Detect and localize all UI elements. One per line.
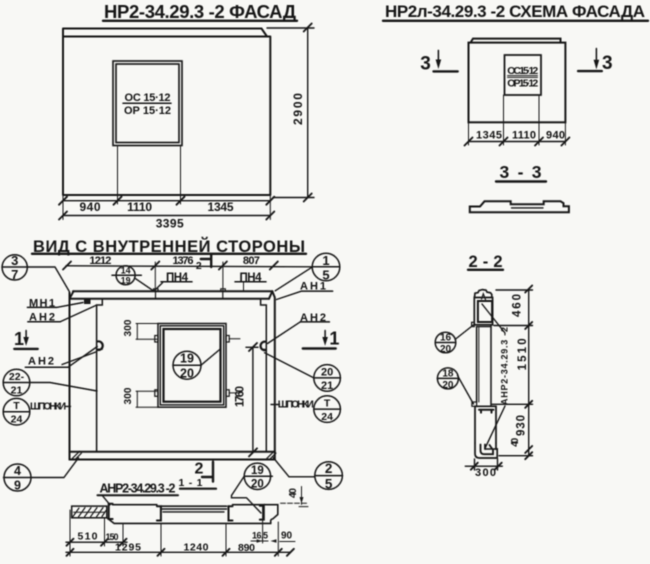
- svg-text:19: 19: [180, 352, 194, 366]
- svg-text:18: 18: [442, 368, 454, 379]
- svg-text:19: 19: [121, 275, 131, 285]
- svg-text:1212: 1212: [89, 255, 111, 267]
- svg-text:16: 16: [440, 333, 452, 344]
- svg-text:Т: Т: [13, 400, 20, 412]
- svg-text:300: 300: [123, 319, 134, 336]
- svg-text:24: 24: [11, 414, 23, 426]
- svg-text:16,5: 16,5: [252, 531, 268, 541]
- svg-text:1-1: 1-1: [179, 477, 203, 489]
- svg-text:5: 5: [325, 476, 333, 491]
- svg-text:90: 90: [281, 531, 292, 542]
- svg-text:2: 2: [325, 461, 333, 476]
- svg-text:20: 20: [251, 478, 264, 490]
- svg-text:22-: 22-: [9, 371, 25, 383]
- svg-text:3: 3: [420, 54, 431, 75]
- svg-text:НР2-34.29.3 -2 ФАСАД: НР2-34.29.3 -2 ФАСАД: [104, 1, 296, 22]
- svg-text:2900: 2900: [291, 93, 305, 125]
- svg-text:НР2л-34.29.3 -2 СХЕМА ФАСАДА: НР2л-34.29.3 -2 СХЕМА ФАСАДА: [385, 2, 645, 21]
- svg-text:24: 24: [321, 411, 333, 423]
- svg-text:1240: 1240: [184, 542, 209, 554]
- svg-text:1376: 1376: [173, 255, 194, 267]
- svg-text:930: 930: [515, 415, 527, 436]
- svg-text:АНР2-34.29.3 -2: АНР2-34.29.3 -2: [100, 482, 176, 496]
- svg-text:4: 4: [14, 464, 21, 478]
- svg-text:9: 9: [14, 478, 21, 492]
- svg-text:1295: 1295: [115, 542, 141, 554]
- svg-text:300: 300: [475, 467, 496, 479]
- svg-text:14: 14: [121, 265, 131, 275]
- svg-text:1110: 1110: [512, 130, 536, 142]
- svg-text:40: 40: [288, 488, 299, 498]
- svg-text:21: 21: [321, 380, 333, 392]
- svg-text:ОР15·12: ОР15·12: [507, 77, 538, 89]
- svg-text:ОС15·12: ОС15·12: [507, 65, 538, 77]
- svg-text:2-2: 2-2: [469, 253, 503, 271]
- svg-text:1345: 1345: [476, 130, 502, 142]
- svg-text:1: 1: [322, 253, 329, 268]
- svg-text:20: 20: [442, 380, 454, 391]
- svg-text:21: 21: [11, 385, 23, 397]
- svg-text:ОС 15·12: ОС 15·12: [125, 92, 171, 104]
- svg-text:1110: 1110: [127, 200, 152, 214]
- svg-text:3: 3: [602, 53, 613, 74]
- svg-text:ШПОНКИ: ШПОНКИ: [30, 401, 66, 412]
- svg-text:890: 890: [238, 542, 255, 554]
- svg-text:150: 150: [106, 532, 119, 542]
- svg-text:1345: 1345: [208, 200, 234, 214]
- svg-text:20: 20: [180, 367, 194, 381]
- svg-text:20: 20: [440, 344, 452, 355]
- svg-text:3395: 3395: [156, 217, 184, 231]
- svg-text:1510: 1510: [517, 338, 529, 370]
- svg-text:1: 1: [329, 328, 339, 348]
- svg-text:19: 19: [251, 465, 264, 477]
- svg-text:2: 2: [194, 460, 203, 477]
- svg-text:460: 460: [512, 294, 524, 317]
- svg-text:510: 510: [78, 531, 98, 543]
- svg-text:2: 2: [196, 260, 202, 272]
- svg-text:ОР 15·12: ОР 15·12: [124, 105, 171, 117]
- svg-text:807: 807: [243, 255, 260, 267]
- svg-text:3: 3: [11, 253, 18, 268]
- svg-text:7: 7: [11, 267, 18, 282]
- svg-text:1760: 1760: [235, 386, 247, 407]
- svg-text:ШПОНКИ: ШПОНКИ: [278, 400, 314, 411]
- svg-text:1: 1: [14, 329, 24, 349]
- svg-text:АНР2-34.29.3 -2: АНР2-34.29.3 -2: [500, 327, 510, 405]
- svg-text:940: 940: [80, 200, 101, 214]
- svg-text:Т: Т: [324, 398, 331, 410]
- svg-text:300: 300: [123, 387, 134, 404]
- svg-text:40: 40: [510, 437, 521, 446]
- svg-text:АН2: АН2: [28, 355, 54, 367]
- svg-text:3-3: 3-3: [500, 162, 542, 182]
- svg-text:940: 940: [546, 130, 565, 142]
- svg-text:20: 20: [321, 366, 333, 378]
